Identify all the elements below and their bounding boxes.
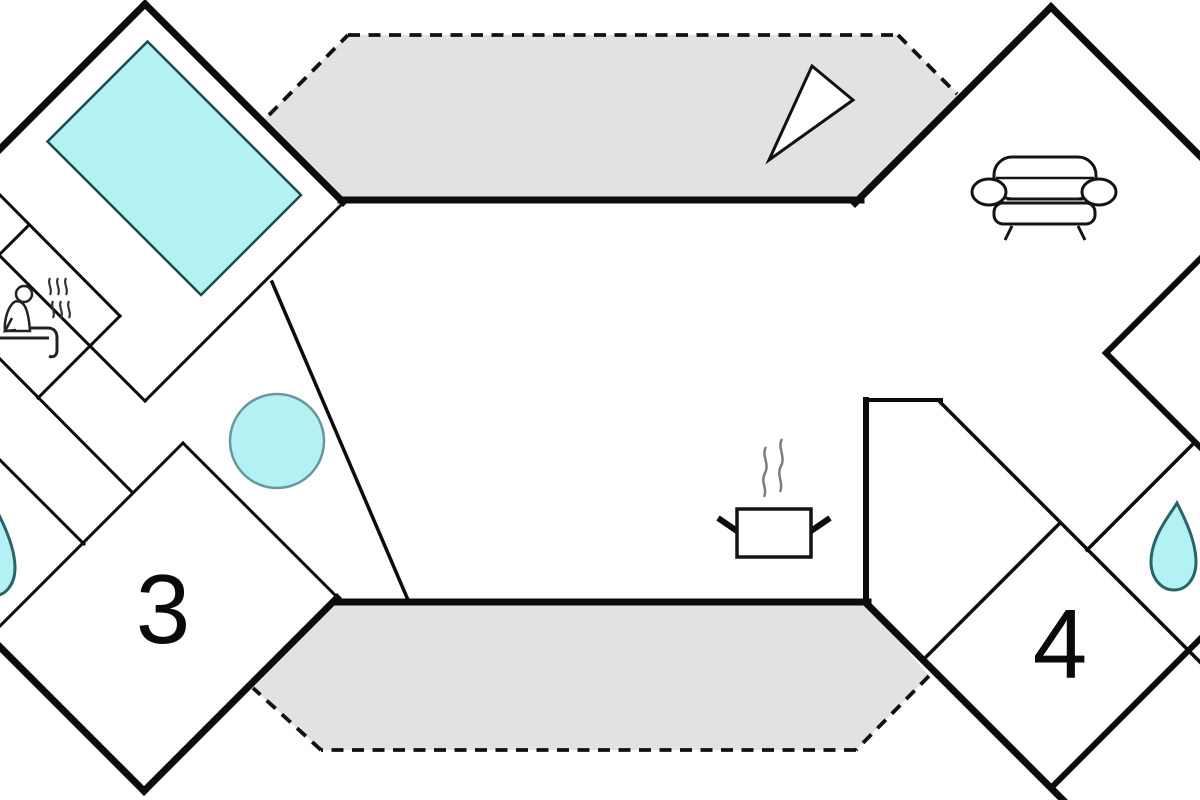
svg-text:3: 3 — [136, 554, 191, 664]
svg-text:4: 4 — [1033, 589, 1088, 699]
